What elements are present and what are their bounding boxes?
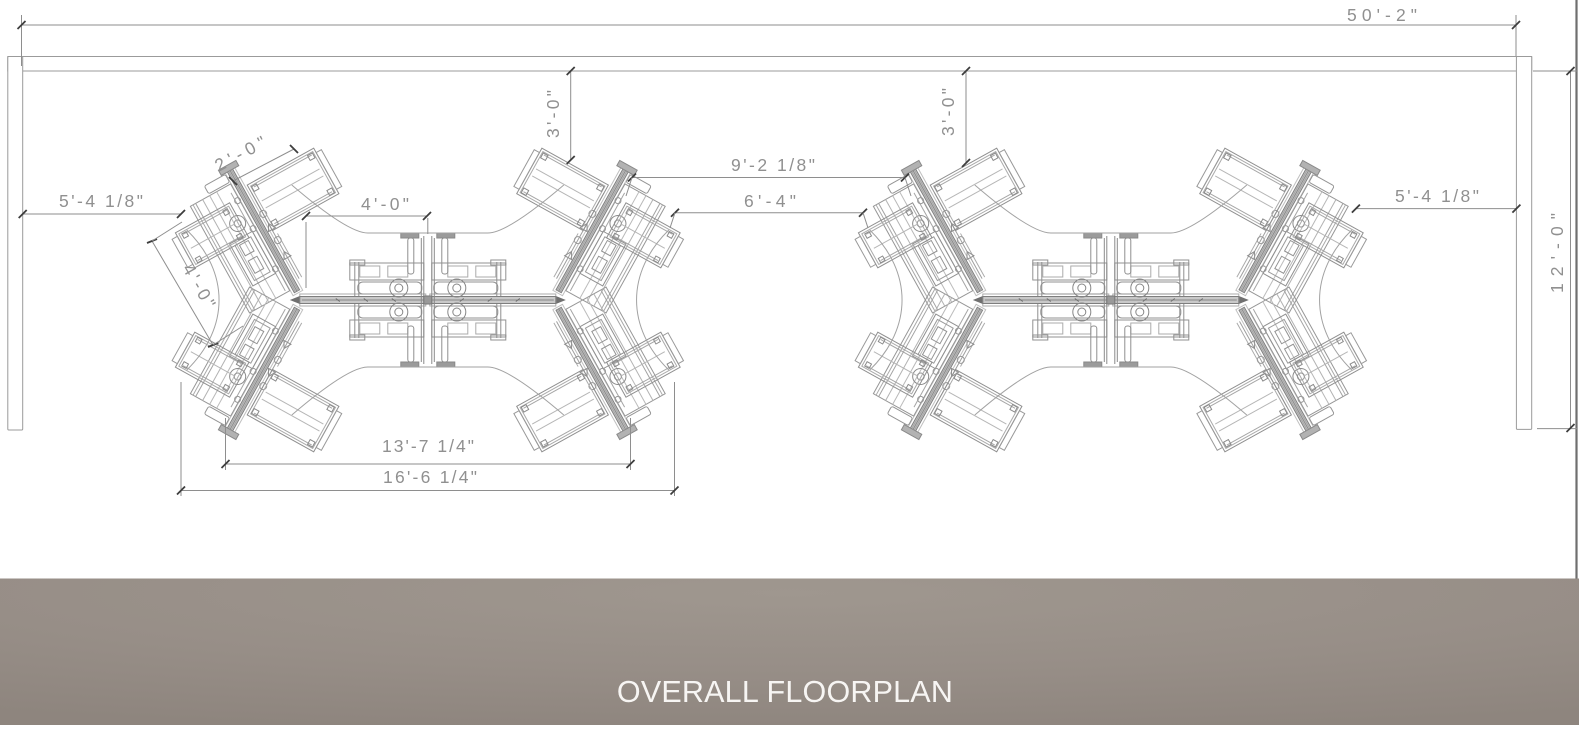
svg-text:4'-0": 4'-0" <box>361 194 409 214</box>
svg-text:5'-4 1/8": 5'-4 1/8" <box>59 191 143 211</box>
svg-text:5'-4 1/8": 5'-4 1/8" <box>1395 186 1479 206</box>
svg-text:OVERALL FLOORPLAN: OVERALL FLOORPLAN <box>617 675 953 709</box>
svg-text:16'-6 1/4": 16'-6 1/4" <box>383 467 477 487</box>
svg-text:3'-0": 3'-0" <box>543 90 563 138</box>
svg-text:13'-7 1/4": 13'-7 1/4" <box>382 436 474 456</box>
svg-text:9'-2 1/8": 9'-2 1/8" <box>731 155 815 175</box>
svg-text:3'-0": 3'-0" <box>938 88 958 136</box>
